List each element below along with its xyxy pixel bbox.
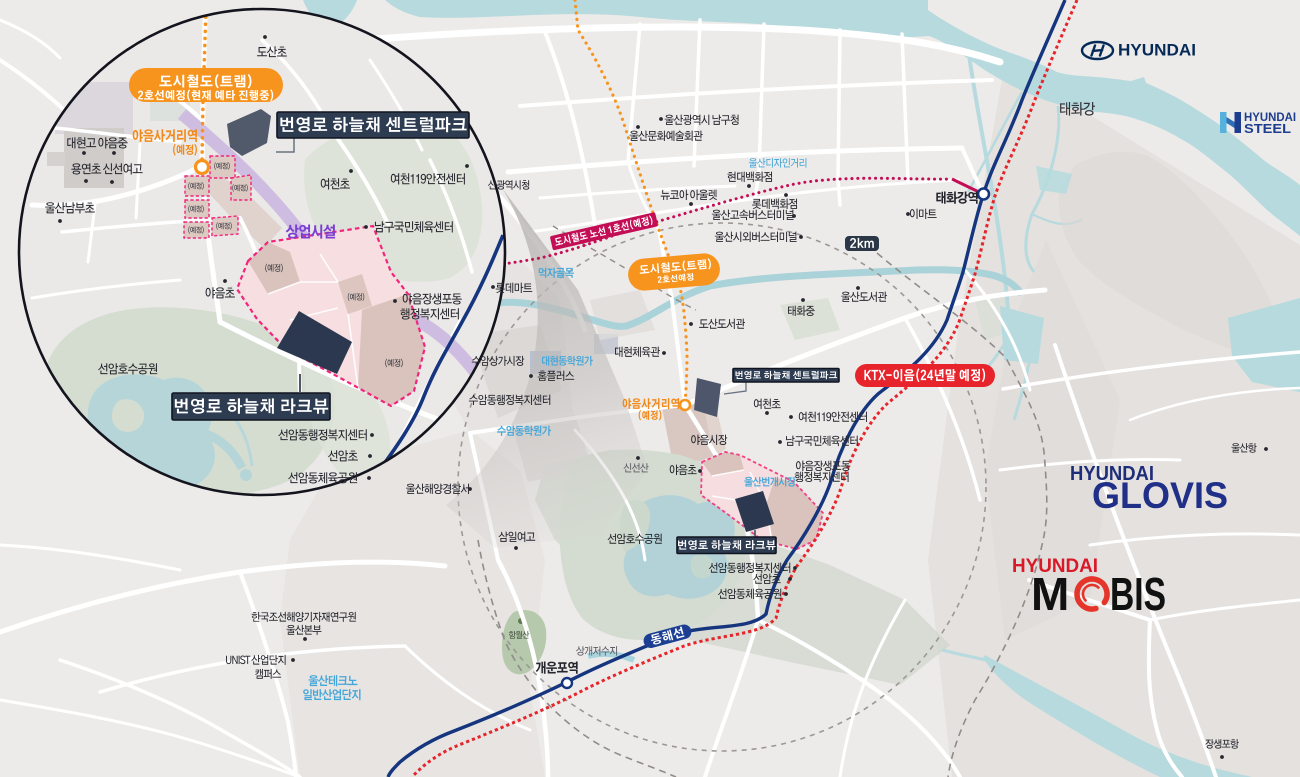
svg-text:M: M [1031,568,1069,620]
svg-text:HYUNDAI: HYUNDAI [1118,42,1196,60]
svg-text:BIS: BIS [1110,568,1166,620]
svg-text:GLOVIS: GLOVIS [1092,475,1228,516]
svg-text:STEEL: STEEL [1244,122,1291,136]
